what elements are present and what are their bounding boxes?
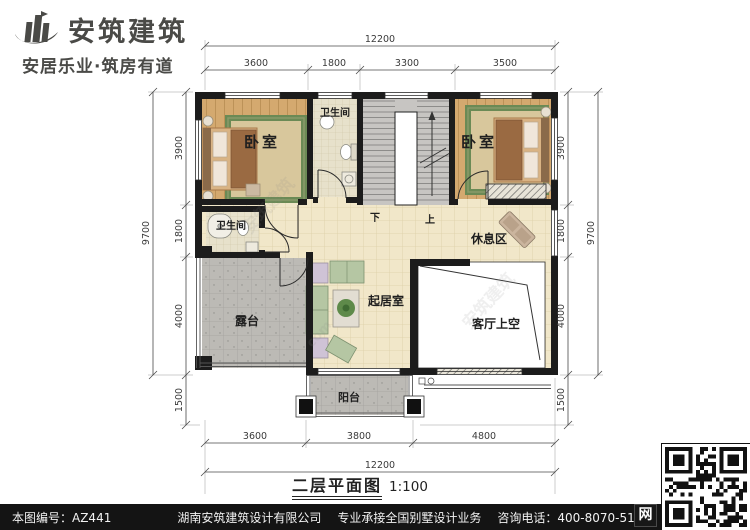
label-balcony: 阳台: [338, 390, 360, 404]
drawing-scale: 1:100: [389, 479, 428, 495]
label-bath-top: 卫生间: [320, 106, 350, 119]
dim-bottom-2: 3800: [347, 431, 371, 442]
dim-top-2: 1800: [322, 58, 346, 69]
dim-bottom-overall: 12200: [365, 460, 395, 471]
phone-text: 咨询电话：400-8070-511: [497, 509, 642, 526]
dim-right-overall: 9700: [586, 221, 597, 245]
drawing-title-text: 二层平面图: [292, 476, 382, 500]
dim-right-4: 1500: [556, 388, 567, 412]
label-bedroom-right: 卧室: [461, 133, 497, 151]
dim-right-2: 1800: [556, 219, 567, 243]
label-bedroom-left: 卧室: [244, 133, 280, 151]
dim-bottom-3: 4800: [472, 431, 496, 442]
nightstand: [203, 116, 213, 126]
floor-plan: 卧室 卧室 卫生间 卫生间 休息区 起居室 露台 客厅上空 阳台 下 上 安筑建…: [0, 0, 750, 530]
nightstand: [541, 107, 551, 117]
dresser: [246, 184, 260, 196]
dim-left-2: 1800: [174, 219, 185, 243]
dim-top-4: 3500: [493, 58, 517, 69]
company-name: 湖南安筑建筑设计有限公司: [177, 509, 321, 526]
wardrobe: [486, 184, 546, 199]
dim-left-3: 4000: [174, 304, 185, 328]
bed-right: [494, 118, 549, 182]
label-rest-area: 休息区: [470, 231, 507, 246]
label-stair-down: 下: [370, 212, 380, 224]
drawing-title: 二层平面图1:100: [270, 472, 450, 496]
dim-right-1: 3900: [556, 136, 567, 160]
dim-top-overall: 12200: [365, 34, 395, 45]
dim-right-3: 4000: [556, 304, 567, 328]
dim-left-4: 1500: [174, 388, 185, 412]
dim-bottom-1: 3600: [243, 431, 267, 442]
label-terrace: 露台: [235, 313, 259, 328]
drawing-number: 本图编号：AZ441: [12, 509, 111, 526]
qr-pattern: [665, 447, 747, 527]
label-stair-up: 上: [425, 213, 435, 226]
dim-left-1: 3900: [174, 136, 185, 160]
dim-top-3: 3300: [395, 58, 419, 69]
page: 安筑建筑 安居乐业·筑房有道: [0, 0, 750, 530]
label-living: 起居室: [367, 293, 404, 308]
service-text: 专业承接全国别墅设计业务: [337, 509, 481, 526]
web-badge: 网: [634, 504, 657, 527]
dim-top-1: 3600: [244, 58, 268, 69]
dim-left-overall: 9700: [141, 221, 152, 245]
qr-code: [662, 444, 750, 530]
